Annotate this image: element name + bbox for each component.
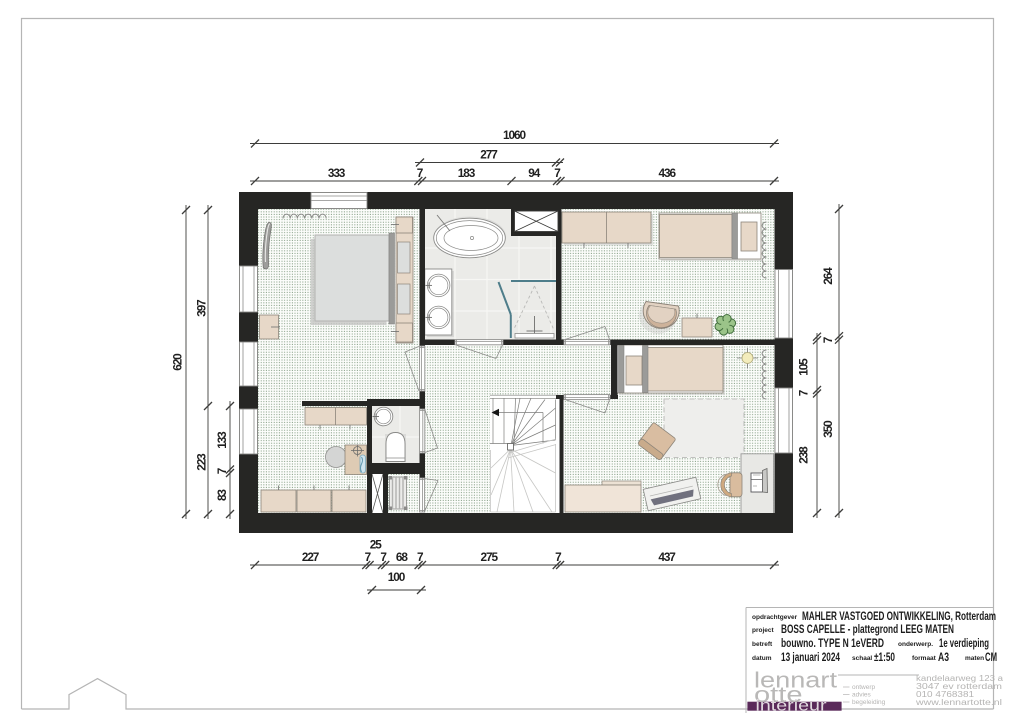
- svg-text:BOSS CAPELLE - plattegrond LEE: BOSS CAPELLE - plattegrond LEEG MATEN: [781, 622, 954, 636]
- svg-text:238: 238: [797, 446, 811, 464]
- svg-text:ontwerp: ontwerp: [852, 684, 876, 691]
- svg-text:436: 436: [659, 166, 677, 180]
- svg-text:7: 7: [365, 550, 372, 564]
- svg-text:CM: CM: [985, 650, 997, 664]
- svg-text:A3: A3: [938, 650, 949, 664]
- svg-text:7: 7: [417, 550, 424, 564]
- svg-text:227: 227: [302, 550, 320, 564]
- svg-text:schaal: schaal: [852, 655, 872, 662]
- svg-text:begeleiding: begeleiding: [852, 699, 886, 706]
- svg-text:7: 7: [554, 166, 561, 180]
- svg-text:interieur: interieur: [756, 698, 828, 715]
- svg-text:7: 7: [380, 550, 387, 564]
- svg-text:94: 94: [528, 166, 540, 180]
- svg-text:68: 68: [396, 550, 408, 564]
- svg-text:397: 397: [195, 299, 209, 317]
- svg-text:105: 105: [797, 358, 811, 376]
- svg-text:277: 277: [480, 148, 498, 162]
- svg-text:333: 333: [328, 166, 346, 180]
- svg-text:www.lennartotte.nl: www.lennartotte.nl: [915, 698, 1003, 707]
- svg-text:264: 264: [821, 267, 835, 285]
- svg-text:13 januari 2024: 13 januari 2024: [781, 650, 840, 664]
- svg-text:133: 133: [215, 431, 229, 449]
- svg-text:opdrachtgever: opdrachtgever: [752, 614, 798, 621]
- svg-text:7: 7: [215, 467, 229, 474]
- svg-text:7: 7: [417, 166, 424, 180]
- svg-text:bouwno. TYPE N 1eVERD: bouwno. TYPE N 1eVERD: [781, 636, 884, 650]
- svg-text:1060: 1060: [503, 128, 526, 142]
- svg-text:350: 350: [821, 420, 835, 438]
- svg-text:MAHLER VASTGOED ONTWIKKELING,: MAHLER VASTGOED ONTWIKKELING, Rotterdam: [802, 609, 996, 623]
- svg-text:7: 7: [555, 550, 562, 564]
- svg-text:183: 183: [458, 166, 476, 180]
- svg-text:±1:50: ±1:50: [874, 650, 895, 664]
- svg-text:maten: maten: [965, 655, 984, 662]
- svg-text:275: 275: [481, 550, 499, 564]
- svg-text:223: 223: [195, 453, 209, 471]
- svg-text:advies: advies: [852, 692, 872, 699]
- svg-text:project: project: [752, 627, 775, 634]
- svg-text:100: 100: [388, 570, 406, 584]
- svg-text:437: 437: [658, 550, 676, 564]
- svg-text:1e verdieping: 1e verdieping: [939, 636, 989, 650]
- svg-text:betreft: betreft: [752, 641, 773, 648]
- svg-text:datum: datum: [752, 655, 772, 662]
- svg-text:620: 620: [171, 353, 185, 371]
- svg-text:7: 7: [821, 336, 835, 343]
- svg-text:83: 83: [215, 489, 229, 501]
- svg-text:onderwerp.: onderwerp.: [898, 641, 933, 648]
- svg-text:formaat: formaat: [912, 655, 937, 662]
- svg-text:7: 7: [797, 389, 811, 396]
